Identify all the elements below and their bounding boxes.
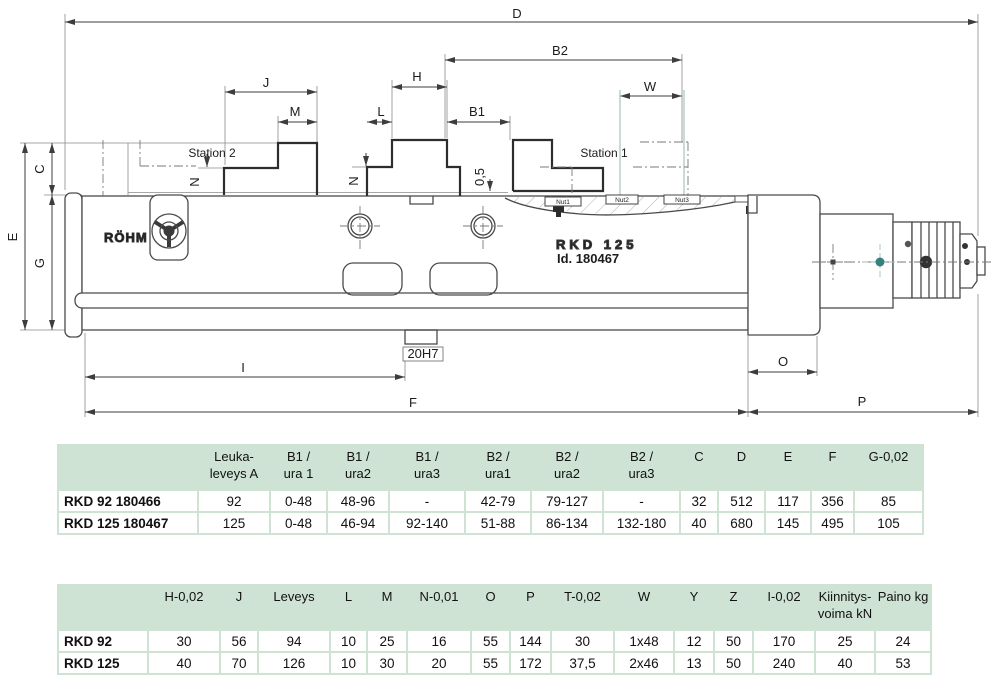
column-header: B1 / ura3 [390,446,464,489]
side-groove [75,293,757,308]
id-marking: Id. 180467 [557,251,619,266]
station2-jaw [224,143,317,195]
column-header: B1 / ura 1 [271,446,326,489]
nut1-label: Nut1 [556,199,570,206]
cell: 10 [331,631,366,651]
column-header: E [766,446,810,489]
cell: 16 [408,631,470,651]
vise-body: RÖHM [65,193,757,337]
cell: 356 [812,491,853,511]
cell: 56 [221,631,257,651]
dim-label-h: H [412,69,421,84]
row-label: RKD 92 [59,631,147,651]
dim-label-b2: B2 [552,43,568,58]
column-header: B2 / ura1 [466,446,530,489]
table-row: RKD 92 180466 92 0-48 48-96 - 42-79 79-1… [59,491,922,511]
cell: 79-127 [532,491,602,511]
column-header: B2 / ura2 [532,446,602,489]
spindle-flange [893,222,912,298]
cell: 50 [715,631,752,651]
cell: 46-94 [328,513,388,533]
column-header: Y [675,586,713,629]
spindle-tip [977,247,985,275]
row-label: RKD 125 [59,653,147,673]
dim-label-j: J [263,75,270,90]
nut2-label: Nut2 [615,197,629,204]
table-row: RKD 125 180467 125 0-48 46-94 92-140 51-… [59,513,922,533]
cell: 40 [681,513,717,533]
cell: 92 [199,491,269,511]
column-header: B2 / ura3 [604,446,679,489]
column-header: N-0,01 [408,586,470,629]
station2-label: Station 2 [188,146,236,160]
column-header: D [719,446,764,489]
row-label: RKD 125 180467 [59,513,197,533]
column-header: Kiinnitys- voima kN [816,586,874,629]
dim-label-l: L [377,104,384,119]
dim-label-f: F [409,395,417,410]
cell: 512 [719,491,764,511]
column-header: Leveys [259,586,329,629]
keyway-label: 20H7 [407,346,438,361]
cell: 2x46 [615,653,673,673]
station1-label: Station 1 [580,146,628,160]
cell: 1x48 [615,631,673,651]
column-header: I-0,02 [754,586,814,629]
cell: 240 [754,653,814,673]
spindle-assembly [748,195,992,335]
spec-table-2-wrap: H-0,02 J Leveys L M N-0,01 O P T-0,02 W … [57,584,932,675]
spec-table-1-wrap: Leuka- leveys A B1 / ura 1 B1 / ura2 B1 … [57,444,924,535]
cell: 12 [675,631,713,651]
cell: 0-48 [271,513,326,533]
cell: 132-180 [604,513,679,533]
cell: 48-96 [328,491,388,511]
table1-header-row: Leuka- leveys A B1 / ura 1 B1 / ura2 B1 … [59,446,922,489]
nut3-label: Nut3 [675,197,689,204]
rohm-logo: RÖHM [104,230,148,245]
dim-label-d: D [512,6,521,21]
cell: 42-79 [466,491,530,511]
dim-label-w: W [644,79,657,94]
cell: 70 [221,653,257,673]
cell: 20 [408,653,470,673]
cell: 55 [472,653,509,673]
cell: 25 [816,631,874,651]
dim-label-c: C [32,164,47,173]
column-header: Paino kg [876,586,930,629]
cell: 0-48 [271,491,326,511]
column-header [59,446,197,489]
column-header: M [368,586,406,629]
dim-label-g: G [32,258,47,268]
cell: 680 [719,513,764,533]
dim-label-offset: 0,5 [472,168,487,186]
cell: 37,5 [552,653,613,673]
row-label: RKD 92 180466 [59,491,197,511]
column-header: P [511,586,550,629]
keyway: 20H7 [403,330,443,361]
dim-label-o: O [778,354,788,369]
cell: 25 [368,631,406,651]
column-header: W [615,586,673,629]
dim-label-m: M [290,104,301,119]
column-header: H-0,02 [149,586,219,629]
spec-table-2: H-0,02 J Leveys L M N-0,01 O P T-0,02 W … [57,584,932,675]
cell: 13 [675,653,713,673]
column-header: J [221,586,257,629]
column-header: Z [715,586,752,629]
technical-drawing: RÖHM Nut1 Nut2 [0,0,1000,440]
cell: - [390,491,464,511]
cell: 105 [855,513,922,533]
cell: - [604,491,679,511]
cell: 32 [681,491,717,511]
left-end-plate [65,193,82,337]
dim-label-p: P [858,394,867,409]
cell: 86-134 [532,513,602,533]
cell: 51-88 [466,513,530,533]
cell: 172 [511,653,550,673]
spindle-housing [748,195,820,335]
column-header: C [681,446,717,489]
cell: 24 [876,631,930,651]
cell: 145 [766,513,810,533]
column-header: O [472,586,509,629]
column-header: Leuka- leveys A [199,446,269,489]
column-header: L [331,586,366,629]
column-header [59,586,147,629]
cell: 170 [754,631,814,651]
cell: 126 [259,653,329,673]
center-jaw [367,140,460,196]
datasheet-page: RÖHM Nut1 Nut2 [0,0,1000,683]
cell: 30 [552,631,613,651]
cell: 55 [472,631,509,651]
cell: 125 [199,513,269,533]
cell: 50 [715,653,752,673]
dim-label-e: E [5,232,20,241]
cell: 10 [331,653,366,673]
cell: 30 [149,631,219,651]
dim-label-n-left: N [187,177,202,186]
cell: 92-140 [390,513,464,533]
table2-header-row: H-0,02 J Leveys L M N-0,01 O P T-0,02 W … [59,586,930,629]
cell: 30 [368,653,406,673]
cell: 53 [876,653,930,673]
dim-label-n-center: N [346,176,361,185]
spec-table-1: Leuka- leveys A B1 / ura 1 B1 / ura2 B1 … [57,444,924,535]
column-header: G-0,02 [855,446,922,489]
table-row: RKD 125 40 70 126 10 30 20 55 172 37,5 2… [59,653,930,673]
cell: 94 [259,631,329,651]
cell: 117 [766,491,810,511]
column-header: F [812,446,853,489]
nut-labels: Nut1 Nut2 Nut3 [545,195,700,206]
cell: 40 [149,653,219,673]
model-marking: RKD 125 [556,237,637,252]
dim-label-i: I [241,360,245,375]
column-header: T-0,02 [552,586,613,629]
cell: 40 [816,653,874,673]
dim-label-b1: B1 [469,104,485,119]
column-header: B1 / ura2 [328,446,388,489]
cell: 85 [855,491,922,511]
cell: 144 [511,631,550,651]
cell: 495 [812,513,853,533]
table-row: RKD 92 30 56 94 10 25 16 55 144 30 1x48 … [59,631,930,651]
